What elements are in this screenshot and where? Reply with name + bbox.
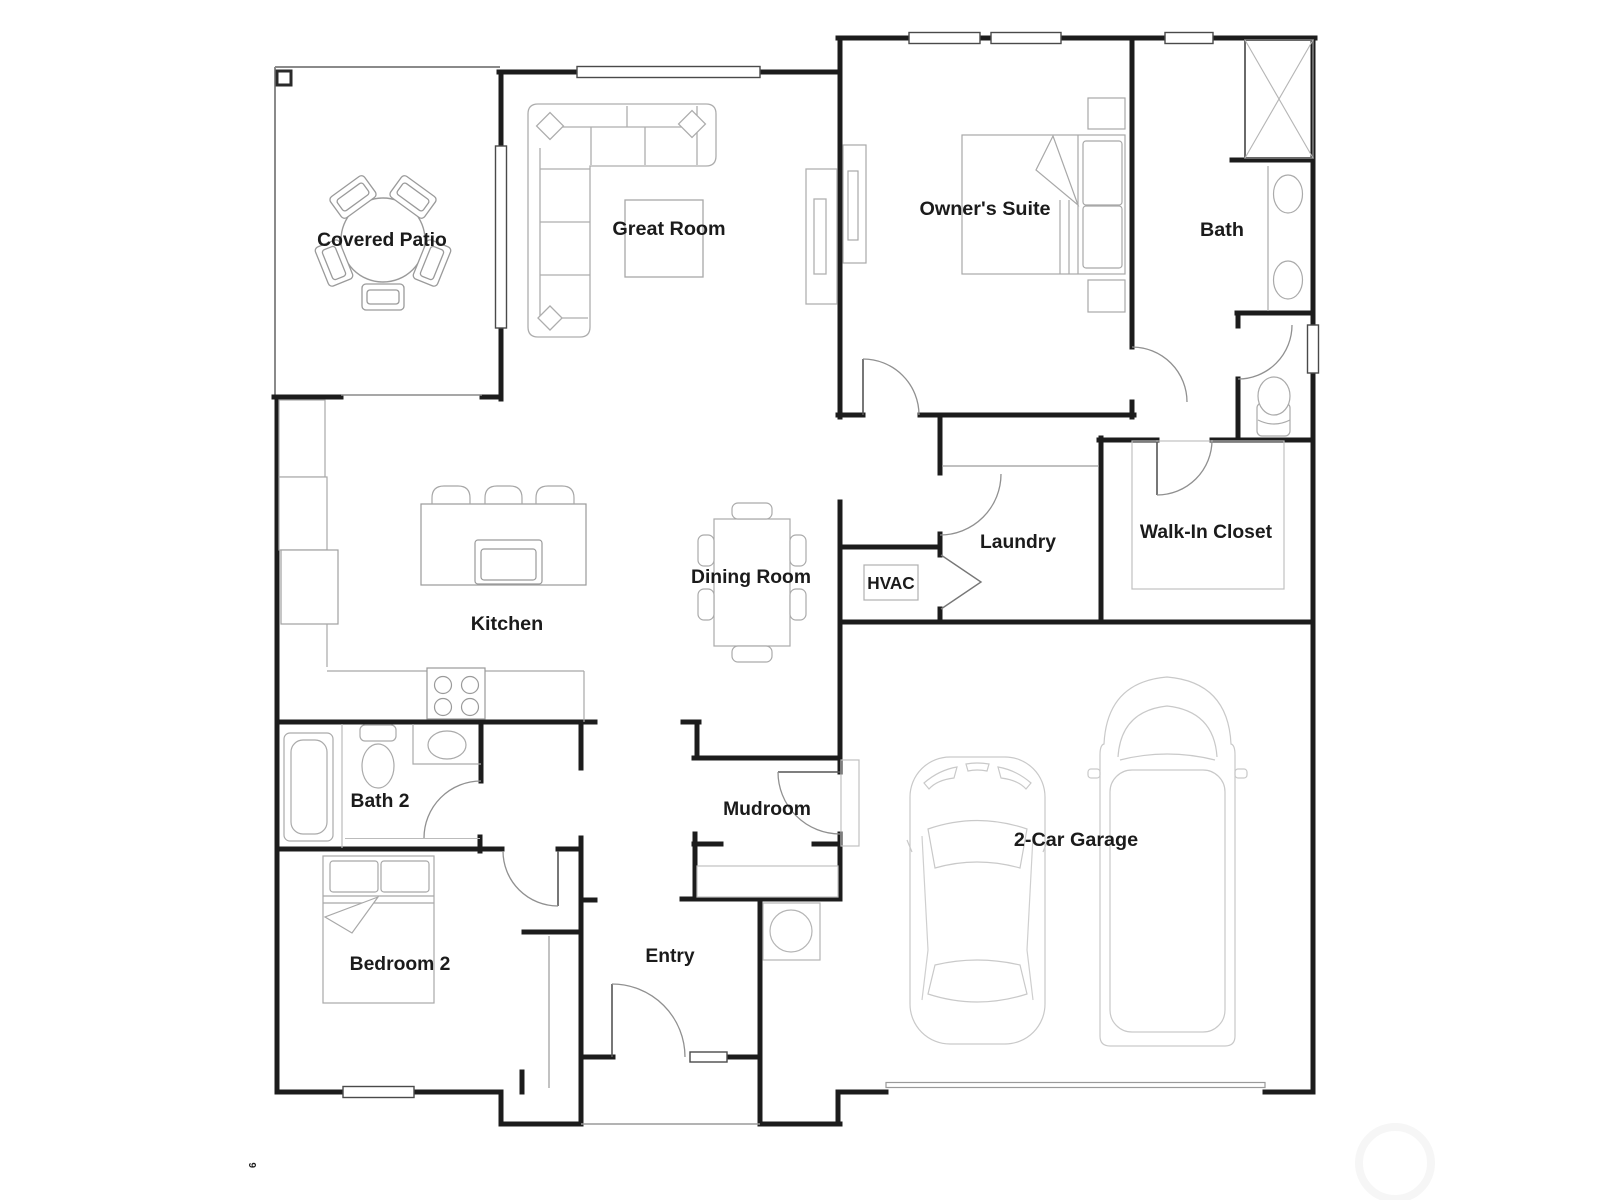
svg-text:Bedroom 2: Bedroom 2	[350, 954, 451, 975]
svg-text:2-Car Garage: 2-Car Garage	[1014, 829, 1138, 851]
svg-text:Laundry: Laundry	[980, 532, 1056, 553]
svg-text:Covered Patio: Covered Patio	[317, 230, 447, 251]
svg-text:6: 6	[248, 1162, 259, 1168]
svg-text:Mudroom: Mudroom	[723, 799, 811, 820]
svg-text:Walk-In Closet: Walk-In Closet	[1140, 522, 1273, 543]
svg-text:Dining Room: Dining Room	[691, 567, 811, 588]
svg-text:Owner's Suite: Owner's Suite	[919, 198, 1050, 220]
svg-text:Great Room: Great Room	[612, 218, 725, 240]
svg-text:HVAC: HVAC	[867, 573, 914, 593]
svg-text:Bath: Bath	[1200, 219, 1244, 241]
svg-text:Entry: Entry	[645, 946, 695, 967]
svg-text:Kitchen: Kitchen	[471, 613, 544, 635]
svg-text:Bath 2: Bath 2	[351, 791, 410, 812]
